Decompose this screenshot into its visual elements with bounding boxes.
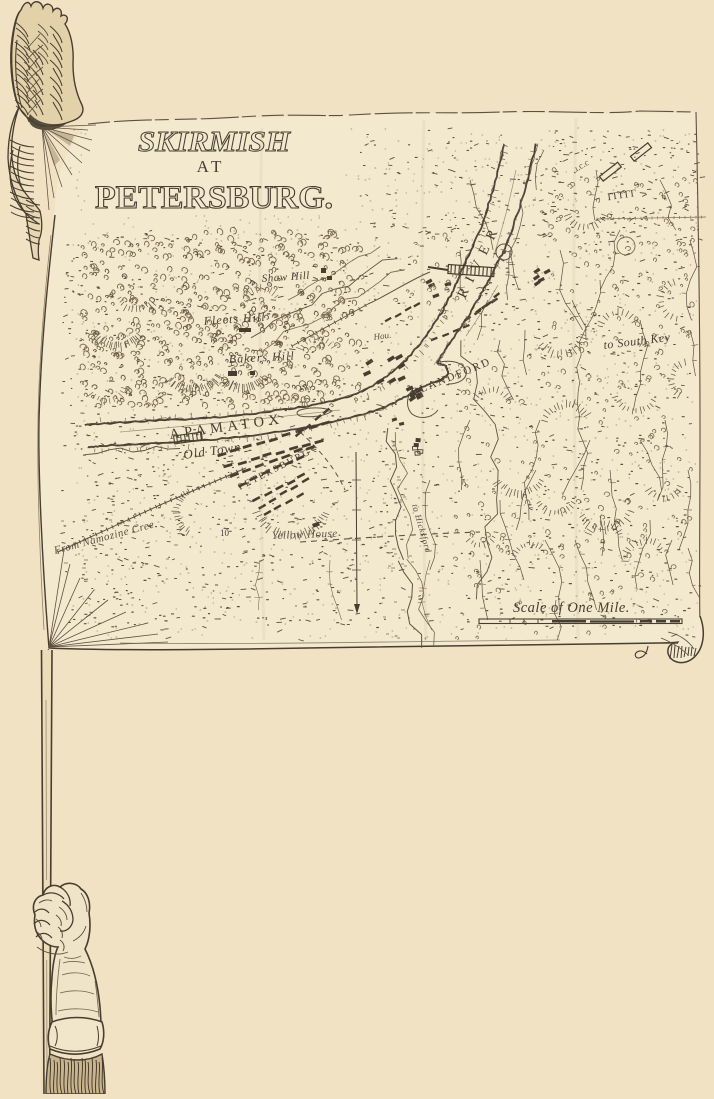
svg-text:Scale of One Mile.: Scale of One Mile. [513,600,630,616]
svg-text:10: 10 [220,528,230,538]
svg-text:Yellow House: Yellow House [272,528,338,542]
svg-text:AT: AT [197,157,226,176]
svg-text:SKIRMISH: SKIRMISH [138,127,291,158]
svg-text:Sw.: Sw. [299,382,313,394]
svg-text:PETERSBURG.: PETERSBURG. [95,180,333,216]
